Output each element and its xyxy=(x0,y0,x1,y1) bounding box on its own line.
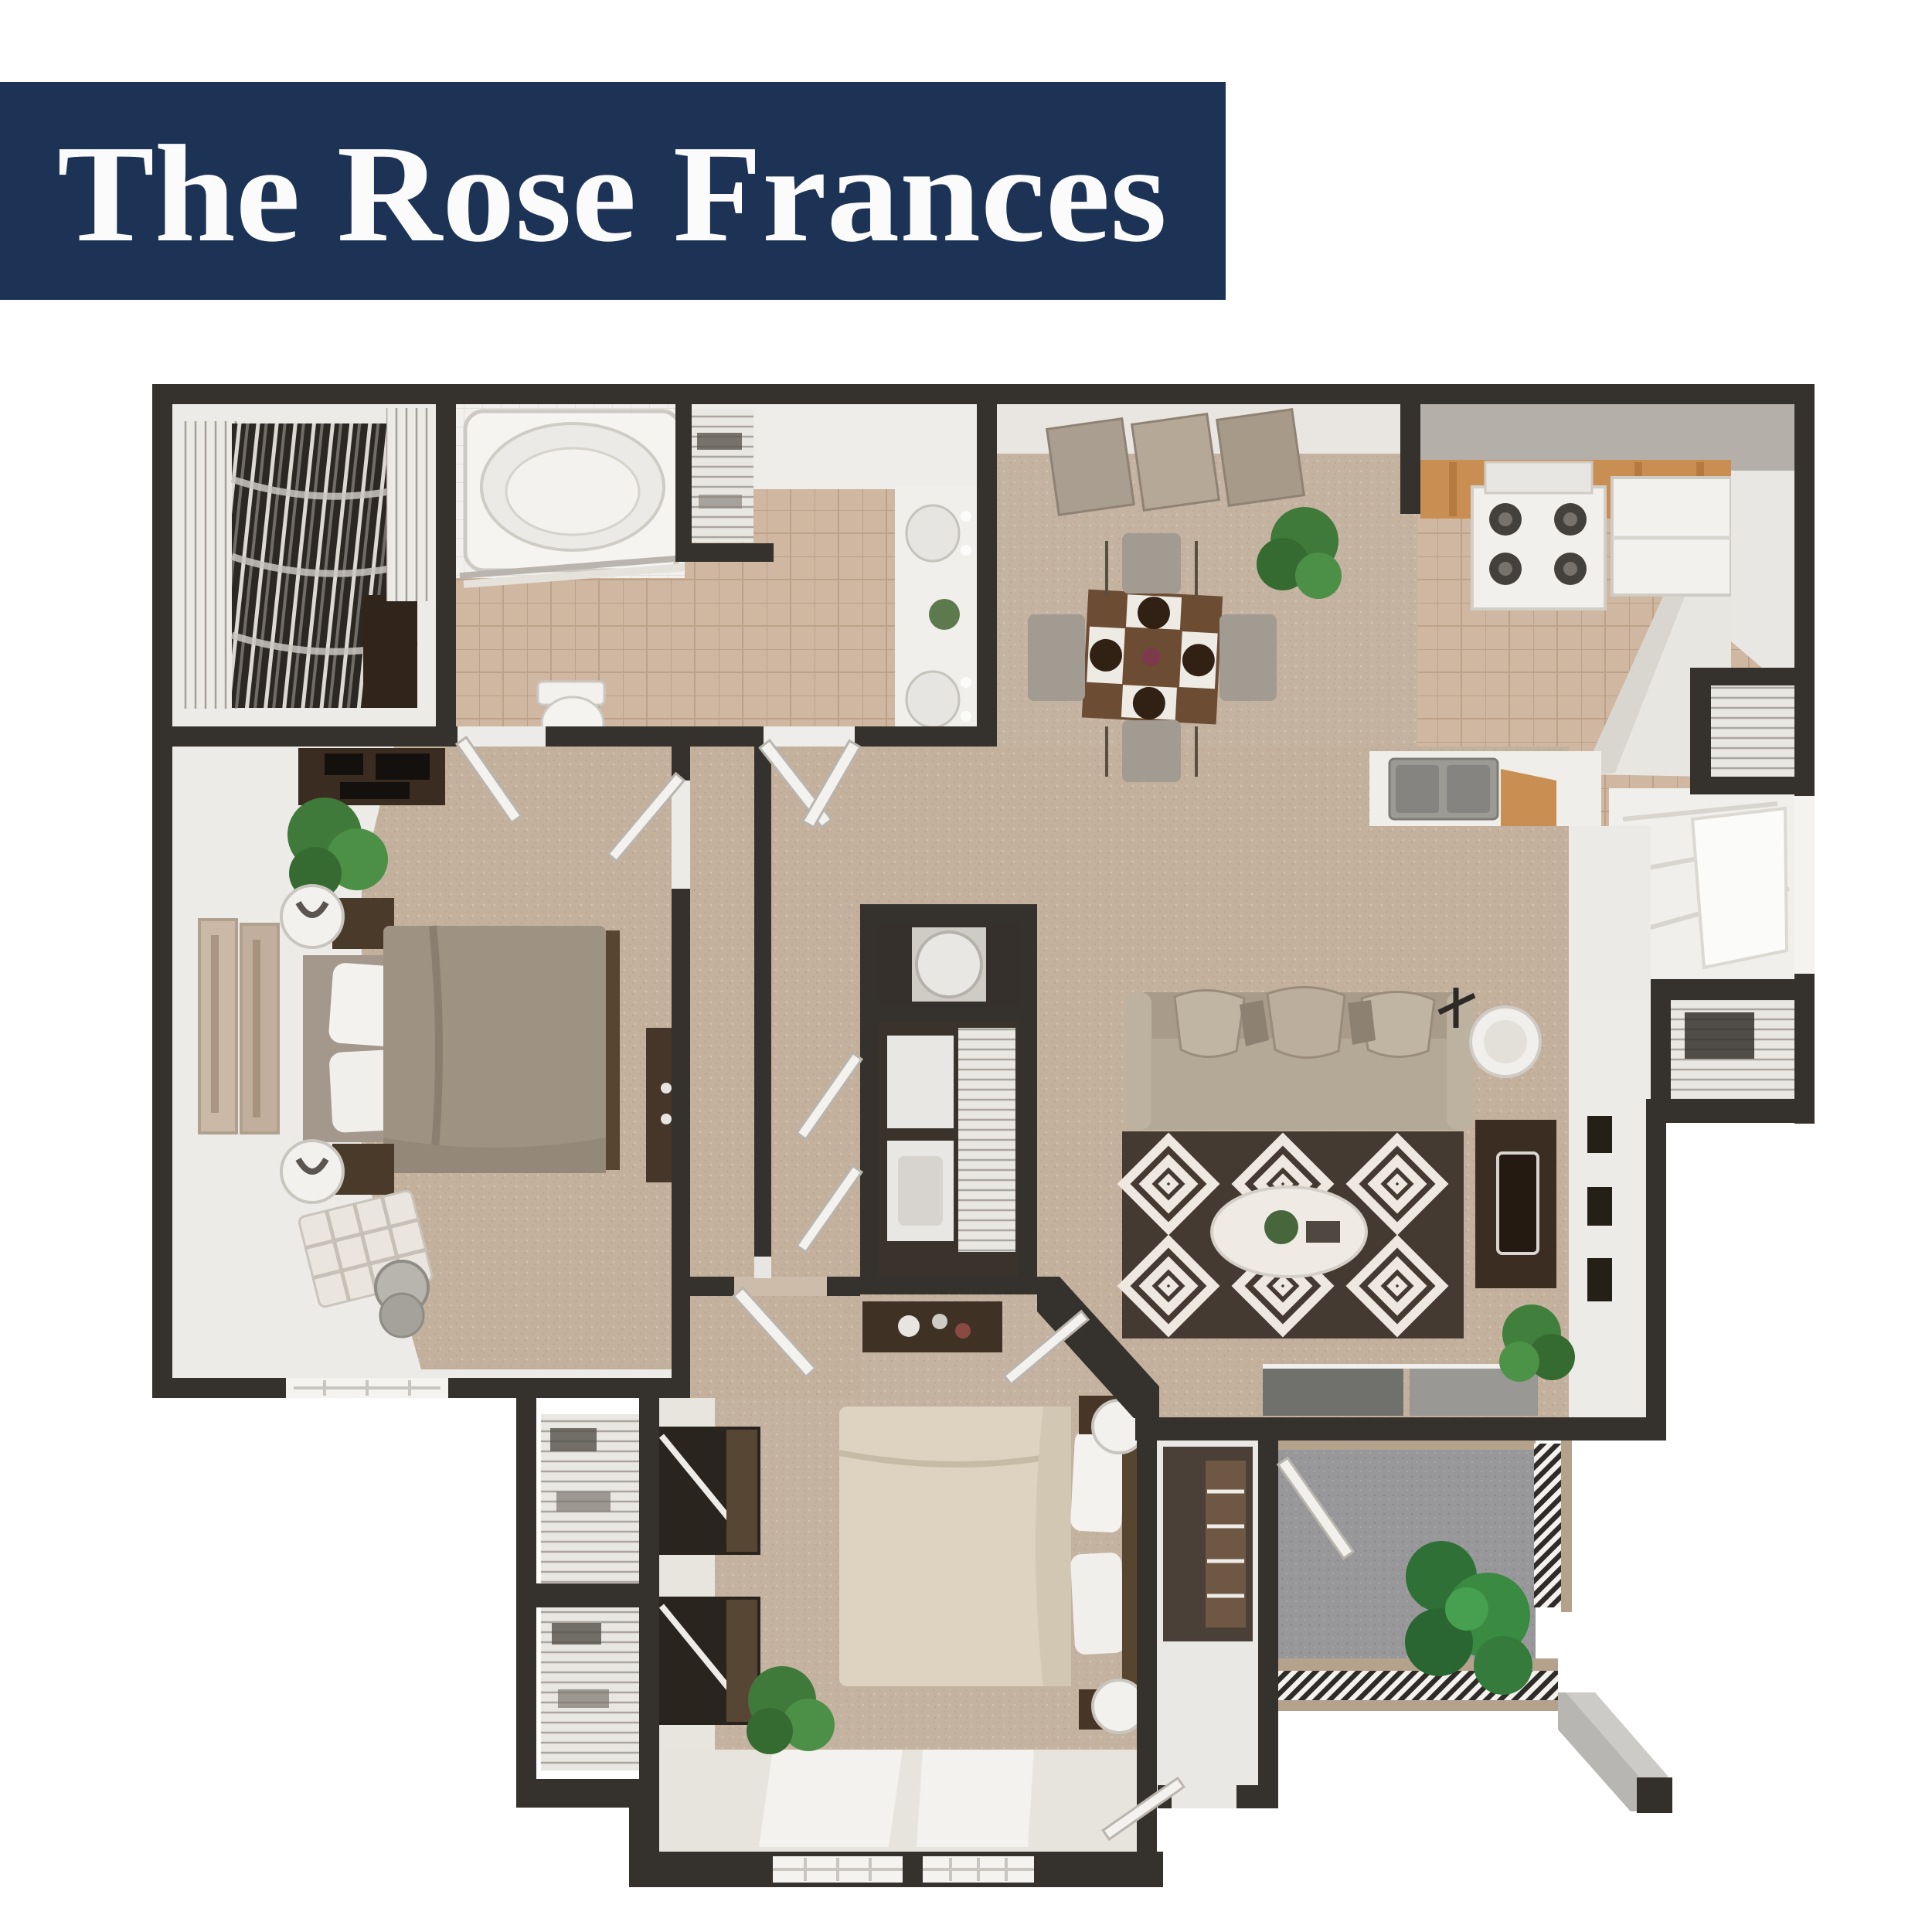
svg-text:The Rose Frances: The Rose Frances xyxy=(57,117,1167,270)
